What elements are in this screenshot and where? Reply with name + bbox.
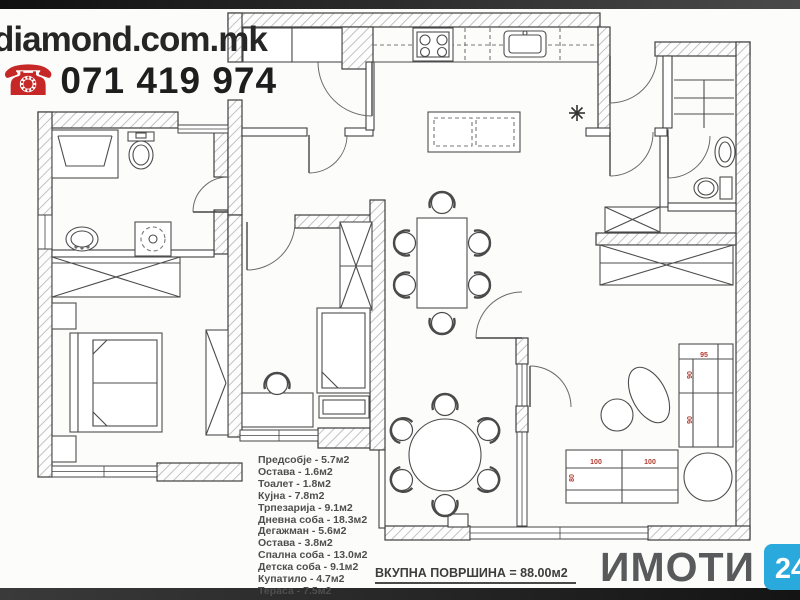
washing-machine	[135, 222, 171, 256]
agency-phone: ☎ 071 419 974	[2, 60, 277, 102]
bathtub	[52, 130, 118, 178]
agency-logo: ИМОТИ 24 7	[600, 544, 800, 590]
svg-text:95: 95	[700, 352, 708, 359]
stove	[413, 28, 453, 61]
svg-text:100: 100	[644, 459, 656, 466]
bath-toilet	[128, 132, 154, 169]
photo-top-bar	[0, 0, 800, 9]
total-area-label: ВКУПНА ПОВРШИНА = 88.00м2	[375, 566, 576, 584]
hall-closet	[605, 207, 660, 232]
logo-wordmark: ИМОТИ	[600, 547, 755, 588]
floorplan-listing-image: 95 90 90 100 100 80	[0, 0, 800, 600]
kitchen-island	[428, 112, 520, 152]
hall-wardrobe	[52, 257, 180, 297]
logo-badge: 24 7	[764, 544, 800, 590]
svg-text:80: 80	[569, 474, 576, 482]
agency-website: diamond.com.mk	[0, 20, 267, 60]
toilet	[694, 177, 732, 199]
kitchen-sink	[504, 31, 546, 57]
kids-wardrobe	[340, 222, 372, 310]
badge-24: 24	[775, 553, 800, 585]
ceiling-light-icon	[569, 105, 585, 121]
desk	[242, 373, 313, 427]
room-list-item: Тоалет - 1.8м2	[258, 479, 458, 491]
phone-number: 071 419 974	[60, 60, 277, 102]
room-list-item: Трпезарија - 9.1м2	[258, 503, 458, 515]
toilet-sink	[715, 137, 735, 167]
kids-bed	[317, 308, 370, 418]
room-list-item: Кујна - 7.8m2	[258, 491, 458, 503]
svg-text:100: 100	[590, 459, 602, 466]
room-list-item: Тераса - 7.5м2	[258, 586, 458, 598]
phone-icon: ☎	[2, 60, 54, 102]
storage-shelves	[674, 80, 734, 128]
bath-sink	[66, 227, 98, 251]
coffee-table	[684, 453, 732, 501]
svg-text:90: 90	[687, 416, 694, 424]
living-wardrobe	[600, 245, 733, 285]
bedroom-wardrobe	[206, 330, 228, 435]
armchair-pouf	[601, 361, 678, 431]
double-bed	[70, 333, 162, 432]
svg-text:90: 90	[687, 371, 694, 379]
dining-table	[394, 192, 490, 334]
